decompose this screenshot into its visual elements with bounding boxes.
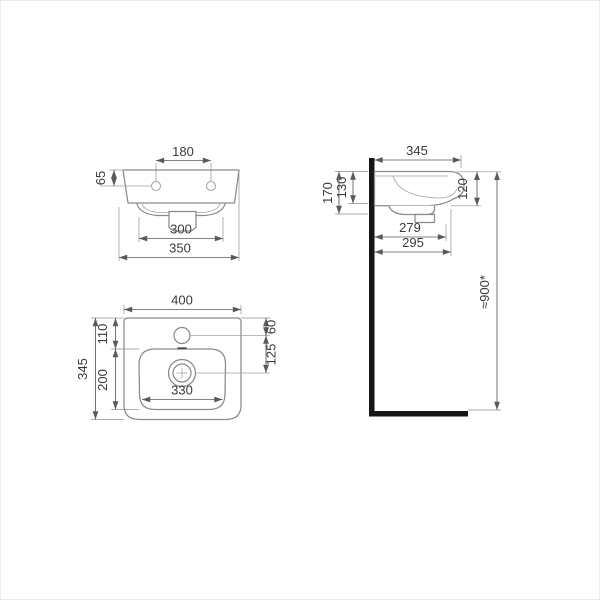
top-view: 400 110 200 345 60 125 330 bbox=[75, 293, 279, 420]
side-view: 345 130 170 120 279 295 ≈900* bbox=[320, 143, 501, 417]
technical-drawing-page: 180 65 300 350 345 130 1 bbox=[0, 0, 600, 600]
technical-drawing-canvas: 180 65 300 350 345 130 1 bbox=[1, 1, 600, 601]
dim-label-bowl-length: 200 bbox=[95, 369, 110, 391]
dim-label-hole-spacing: 180 bbox=[172, 144, 194, 159]
dim-label-bowl-width: 330 bbox=[171, 383, 193, 398]
dim-label-front-edge-height: 120 bbox=[455, 178, 470, 200]
basin-side-profile bbox=[375, 172, 465, 206]
dim-label-trap-depth: 279 bbox=[399, 220, 421, 235]
dim-label-base-width: 350 bbox=[169, 241, 191, 256]
dim-label-hole-drop: 65 bbox=[93, 171, 108, 185]
dim-label-mounting-height: ≈900* bbox=[477, 275, 492, 309]
drain-trap-side bbox=[389, 206, 435, 215]
floor-section bbox=[369, 411, 468, 417]
front-view: 180 65 300 350 bbox=[93, 144, 239, 261]
dim-label-bowl-underside-width: 300 bbox=[170, 222, 192, 237]
dim-label-edge-to-hole: 60 bbox=[264, 320, 279, 334]
dim-label-top-depth: 345 bbox=[75, 358, 90, 380]
basin-front-body bbox=[123, 170, 239, 203]
dim-label-hole-to-drain: 125 bbox=[264, 344, 279, 366]
dim-label-width: 400 bbox=[171, 293, 193, 308]
dim-label-outer-depth: 295 bbox=[402, 235, 424, 250]
dim-label-rear-to-hole: 110 bbox=[95, 324, 110, 345]
dim-label-total-height: 170 bbox=[320, 182, 335, 204]
dim-label-depth: 345 bbox=[406, 143, 428, 158]
wall-section bbox=[369, 158, 375, 416]
dim-label-basin-height: 130 bbox=[334, 177, 349, 199]
